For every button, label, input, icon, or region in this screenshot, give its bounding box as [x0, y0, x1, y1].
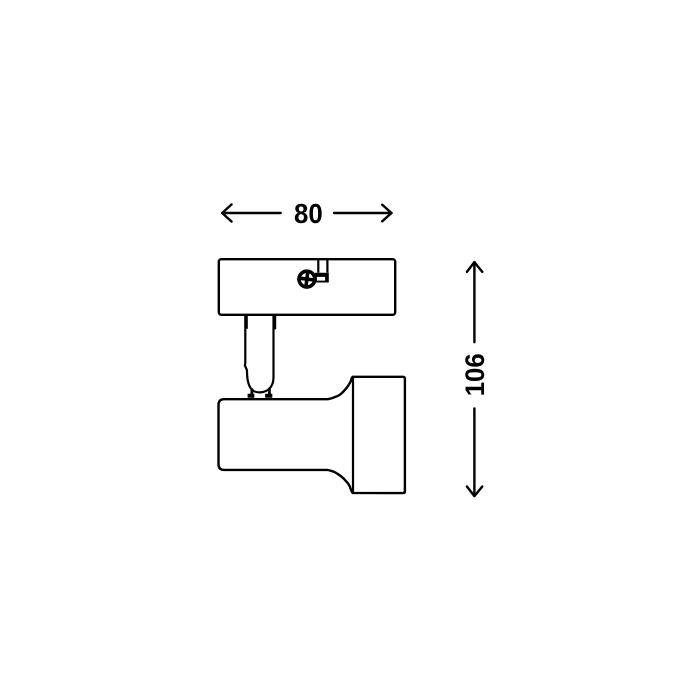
- svg-text:106: 106: [460, 353, 490, 396]
- svg-text:80: 80: [294, 198, 323, 229]
